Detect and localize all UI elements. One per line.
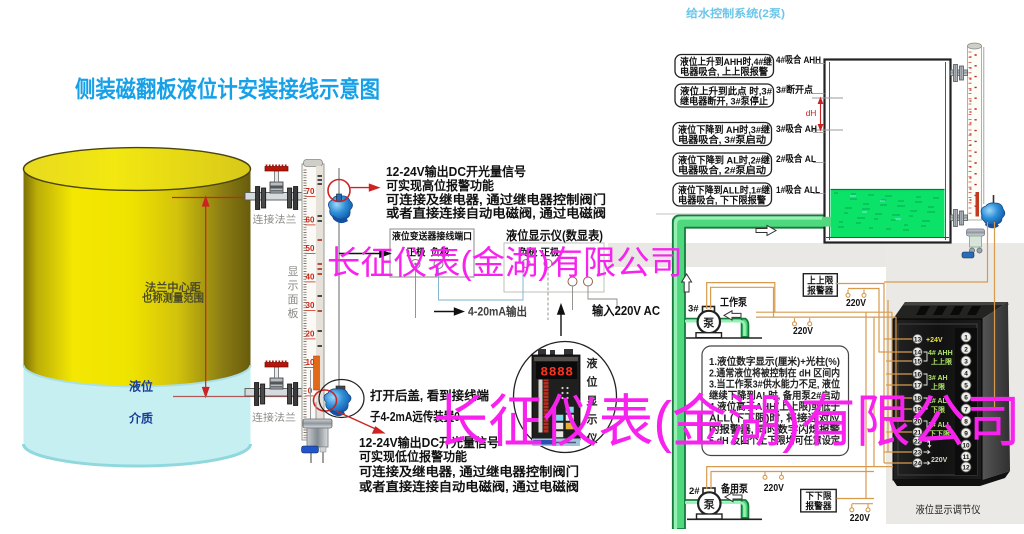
svg-text:液位显示调节仪: 液位显示调节仪 <box>916 503 981 516</box>
svg-text:电器吸合, 下下限报警: 电器吸合, 下下限报警 <box>678 195 766 207</box>
svg-text:可实现高位报警功能: 可实现高位报警功能 <box>386 178 494 193</box>
svg-text:下下限: 下下限 <box>806 491 833 501</box>
svg-text:220V: 220V <box>793 326 813 337</box>
svg-text:输入220V AC: 输入220V AC <box>592 303 660 318</box>
svg-text:3# AH: 3# AH <box>928 375 948 382</box>
svg-text:报警器: 报警器 <box>806 500 833 511</box>
svg-text:2#吸合 AL: 2#吸合 AL <box>776 153 816 165</box>
svg-text:30: 30 <box>306 301 315 310</box>
svg-text:可连接及继电器, 通过继电器控制阀门: 可连接及继电器, 通过继电器控制阀门 <box>359 464 579 479</box>
svg-text:220V: 220V <box>850 513 870 524</box>
svg-text:12-24V输出DC开光量信号: 12-24V输出DC开光量信号 <box>386 164 526 179</box>
svg-text:16: 16 <box>914 371 922 378</box>
svg-text:3#吸合 AH: 3#吸合 AH <box>776 123 817 135</box>
svg-text:连接法兰: 连接法兰 <box>253 213 297 226</box>
svg-text:17: 17 <box>914 382 922 389</box>
svg-text:连接法兰: 连接法兰 <box>252 411 296 424</box>
svg-text:也称测量范围: 也称测量范围 <box>142 291 204 305</box>
svg-text:液: 液 <box>587 356 599 370</box>
svg-text:14: 14 <box>914 349 922 356</box>
svg-text:备用泵: 备用泵 <box>720 482 748 495</box>
svg-text:3#: 3# <box>688 304 699 315</box>
svg-text:5: 5 <box>964 382 968 389</box>
svg-text:70: 70 <box>306 187 315 196</box>
svg-text:长征仪表(金湖)有限公司: 长征仪表(金湖)有限公司 <box>433 390 1021 454</box>
svg-text:3#断开点: 3#断开点 <box>776 84 813 96</box>
svg-text:给水控制系统(2泵): 给水控制系统(2泵) <box>686 6 785 20</box>
svg-text:或者直接连接自动电磁阀, 通过电磁阀: 或者直接连接自动电磁阀, 通过电磁阀 <box>386 206 606 221</box>
svg-text:3: 3 <box>964 358 968 365</box>
svg-text:4#吸合 AHH: 4#吸合 AHH <box>776 54 821 66</box>
svg-text:位: 位 <box>587 375 598 389</box>
svg-text:12: 12 <box>962 464 970 471</box>
svg-text:8888: 8888 <box>540 365 573 380</box>
svg-text:220V: 220V <box>846 298 866 309</box>
svg-text:工作泵: 工作泵 <box>720 296 747 309</box>
svg-text:2: 2 <box>964 346 968 353</box>
svg-text:介质: 介质 <box>128 411 153 426</box>
svg-text:dH: dH <box>806 108 817 118</box>
svg-text:220V: 220V <box>931 457 948 464</box>
svg-text:显: 显 <box>288 265 299 278</box>
svg-text:2#: 2# <box>689 486 700 497</box>
svg-text:+24V: +24V <box>926 337 943 344</box>
svg-text:3.当工作泵3#供水能力不足, 液位: 3.当工作泵3#供水能力不足, 液位 <box>709 378 840 391</box>
svg-text:报警器: 报警器 <box>807 285 834 296</box>
svg-text:4-20mA输出: 4-20mA输出 <box>468 305 527 319</box>
svg-text:4: 4 <box>964 370 968 377</box>
svg-text:上上限: 上上限 <box>931 357 953 366</box>
svg-text:继电器断开, 3#泵停止: 继电器断开, 3#泵停止 <box>680 96 768 108</box>
svg-text:上上限: 上上限 <box>807 275 834 286</box>
svg-text:1.液位数字显示(厘米)+光柱(%): 1.液位数字显示(厘米)+光柱(%) <box>709 355 840 368</box>
svg-text:可连接及继电器, 通过继电器控制阀门: 可连接及继电器, 通过继电器控制阀门 <box>386 192 606 207</box>
svg-text:4# AHH: 4# AHH <box>928 350 953 357</box>
svg-text:或者直接连接自动电磁阀, 通过电磁阀: 或者直接连接自动电磁阀, 通过电磁阀 <box>359 479 579 494</box>
svg-text:2.通常液位将被控制在 dH 区间内: 2.通常液位将被控制在 dH 区间内 <box>709 366 840 379</box>
svg-text:1#吸合 ALL: 1#吸合 ALL <box>776 184 820 196</box>
svg-text:液位显示仪(数显表): 液位显示仪(数显表) <box>506 228 603 243</box>
svg-text:220V: 220V <box>764 483 784 494</box>
svg-text:电器吸合, 3#泵启动: 电器吸合, 3#泵启动 <box>678 134 767 146</box>
svg-text:电器吸合, 上上限报警: 电器吸合, 上上限报警 <box>680 66 768 78</box>
svg-text:13: 13 <box>914 336 922 343</box>
svg-text:50: 50 <box>306 244 315 253</box>
svg-text:1: 1 <box>964 334 968 341</box>
svg-text:泵: 泵 <box>703 317 714 330</box>
svg-text:电器吸合, 2#泵启动: 电器吸合, 2#泵启动 <box>678 165 767 177</box>
svg-text:11: 11 <box>963 454 970 461</box>
svg-text:液位: 液位 <box>129 379 153 394</box>
svg-text:20: 20 <box>306 330 315 339</box>
svg-text:15: 15 <box>914 358 922 365</box>
svg-text:面: 面 <box>288 294 299 306</box>
svg-text:示: 示 <box>288 280 299 292</box>
svg-text:侧装磁翻板液位计安装接线示意图: 侧装磁翻板液位计安装接线示意图 <box>75 76 380 102</box>
svg-text:60: 60 <box>306 216 315 225</box>
svg-text:泵: 泵 <box>704 498 715 511</box>
svg-text:24: 24 <box>914 460 922 467</box>
svg-text:板: 板 <box>288 306 299 320</box>
svg-text:长征仪表(金湖)有限公司: 长征仪表(金湖)有限公司 <box>327 244 683 281</box>
svg-text:液位变送器接线端口: 液位变送器接线端口 <box>392 231 472 243</box>
svg-text:40: 40 <box>306 273 315 282</box>
